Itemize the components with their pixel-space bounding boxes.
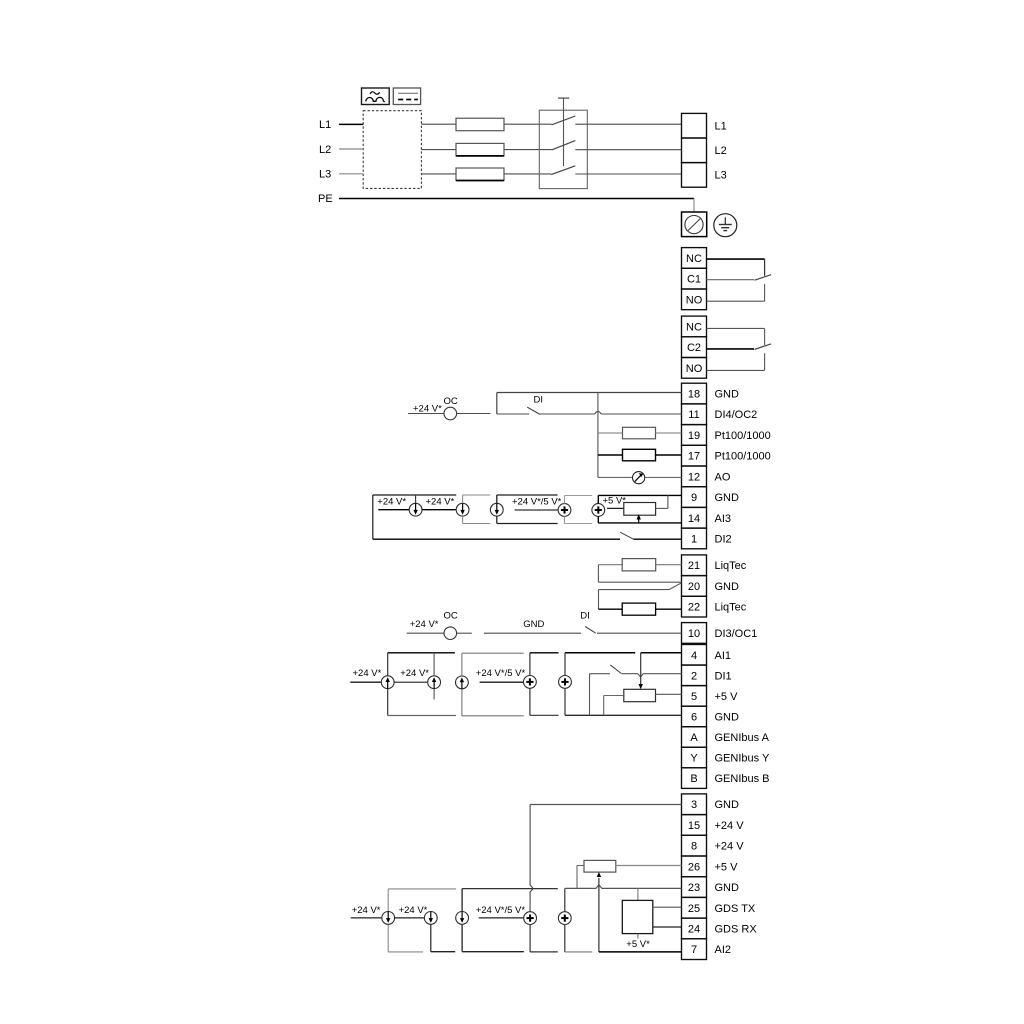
svg-text:7: 7 xyxy=(691,944,697,956)
svg-text:GND: GND xyxy=(523,619,544,630)
svg-text:GND: GND xyxy=(715,492,740,504)
svg-text:AI3: AI3 xyxy=(715,513,732,525)
svg-text:AI1: AI1 xyxy=(715,650,732,662)
svg-text:+5 V*: +5 V* xyxy=(626,939,650,950)
svg-text:12: 12 xyxy=(688,471,700,483)
svg-text:OC: OC xyxy=(444,611,458,622)
svg-text:22: 22 xyxy=(688,602,700,614)
svg-text:20: 20 xyxy=(688,581,700,593)
svg-text:L2: L2 xyxy=(715,145,727,157)
svg-text:9: 9 xyxy=(691,492,697,504)
svg-text:AO: AO xyxy=(715,471,731,483)
svg-text:1: 1 xyxy=(691,534,697,546)
svg-text:A: A xyxy=(690,732,698,744)
svg-text:+24 V*: +24 V* xyxy=(377,497,406,508)
svg-text:OC: OC xyxy=(444,396,458,407)
svg-text:NO: NO xyxy=(686,363,703,375)
svg-text:+24 V*: +24 V* xyxy=(410,619,439,630)
svg-text:GND: GND xyxy=(715,711,740,723)
svg-text:10: 10 xyxy=(688,628,700,640)
svg-text:18: 18 xyxy=(688,389,700,401)
svg-text:19: 19 xyxy=(688,430,700,442)
svg-text:LiqTec: LiqTec xyxy=(715,602,747,614)
svg-text:2: 2 xyxy=(691,670,697,682)
svg-text:25: 25 xyxy=(688,903,700,915)
svg-text:Pt100/1000: Pt100/1000 xyxy=(715,451,771,463)
svg-text:3: 3 xyxy=(691,799,697,811)
svg-text:Pt100/1000: Pt100/1000 xyxy=(715,430,771,442)
svg-text:Y: Y xyxy=(690,753,698,765)
svg-text:DI3/OC1: DI3/OC1 xyxy=(715,628,758,640)
svg-text:GENIbus Y: GENIbus Y xyxy=(715,753,770,765)
svg-text:4: 4 xyxy=(691,650,697,662)
svg-text:8: 8 xyxy=(691,841,697,853)
svg-text:21: 21 xyxy=(688,560,700,572)
svg-text:+24 V*: +24 V* xyxy=(426,497,455,508)
svg-text:GDS RX: GDS RX xyxy=(715,923,758,935)
svg-text:+24 V*/5 V*: +24 V*/5 V* xyxy=(476,905,526,916)
svg-text:26: 26 xyxy=(688,861,700,873)
svg-text:GND: GND xyxy=(715,799,740,811)
svg-text:5: 5 xyxy=(691,691,697,703)
svg-text:+5 V: +5 V xyxy=(715,691,739,703)
svg-text:+24 V*/5 V*: +24 V*/5 V* xyxy=(512,497,562,508)
svg-text:GENIbus B: GENIbus B xyxy=(715,773,770,785)
svg-text:PE: PE xyxy=(318,193,333,205)
svg-text:GND: GND xyxy=(715,581,740,593)
svg-text:+24 V*: +24 V* xyxy=(353,668,382,679)
svg-text:L3: L3 xyxy=(319,169,331,181)
svg-text:+24 V: +24 V xyxy=(715,820,745,832)
svg-text:B: B xyxy=(690,773,697,785)
svg-text:DI: DI xyxy=(534,394,544,405)
svg-text:L3: L3 xyxy=(715,170,727,182)
svg-text:+5 V*: +5 V* xyxy=(603,495,627,506)
svg-text:23: 23 xyxy=(688,882,700,894)
svg-text:L1: L1 xyxy=(319,119,331,131)
svg-text:NC: NC xyxy=(686,253,702,265)
svg-text:AI2: AI2 xyxy=(715,944,732,956)
svg-text:DI: DI xyxy=(580,611,590,622)
svg-text:C2: C2 xyxy=(687,342,701,354)
svg-text:+24 V*: +24 V* xyxy=(399,905,428,916)
svg-text:NC: NC xyxy=(686,322,702,334)
svg-text:6: 6 xyxy=(691,711,697,723)
svg-text:+24 V: +24 V xyxy=(715,841,745,853)
svg-text:15: 15 xyxy=(688,820,700,832)
svg-text:GENIbus A: GENIbus A xyxy=(715,732,770,744)
svg-text:DI1: DI1 xyxy=(715,670,732,682)
svg-text:+24 V*: +24 V* xyxy=(400,668,429,679)
svg-text:11: 11 xyxy=(688,409,699,421)
svg-text:GND: GND xyxy=(715,389,740,401)
svg-text:NO: NO xyxy=(686,294,703,306)
svg-text:+5 V: +5 V xyxy=(715,861,739,873)
svg-text:L2: L2 xyxy=(319,144,331,156)
svg-text:GDS TX: GDS TX xyxy=(715,903,756,915)
svg-text:24: 24 xyxy=(688,923,700,935)
svg-text:14: 14 xyxy=(688,513,700,525)
svg-text:C1: C1 xyxy=(687,274,701,286)
svg-text:LiqTec: LiqTec xyxy=(715,560,747,572)
svg-text:+24 V*: +24 V* xyxy=(352,905,381,916)
svg-text:L1: L1 xyxy=(715,120,727,132)
svg-text:DI2: DI2 xyxy=(715,534,732,546)
svg-text:+24 V*/5 V*: +24 V*/5 V* xyxy=(476,668,526,679)
svg-text:DI4/OC2: DI4/OC2 xyxy=(715,409,758,421)
svg-text:+24 V*: +24 V* xyxy=(413,403,442,414)
svg-text:17: 17 xyxy=(688,451,700,463)
svg-text:GND: GND xyxy=(715,882,740,894)
